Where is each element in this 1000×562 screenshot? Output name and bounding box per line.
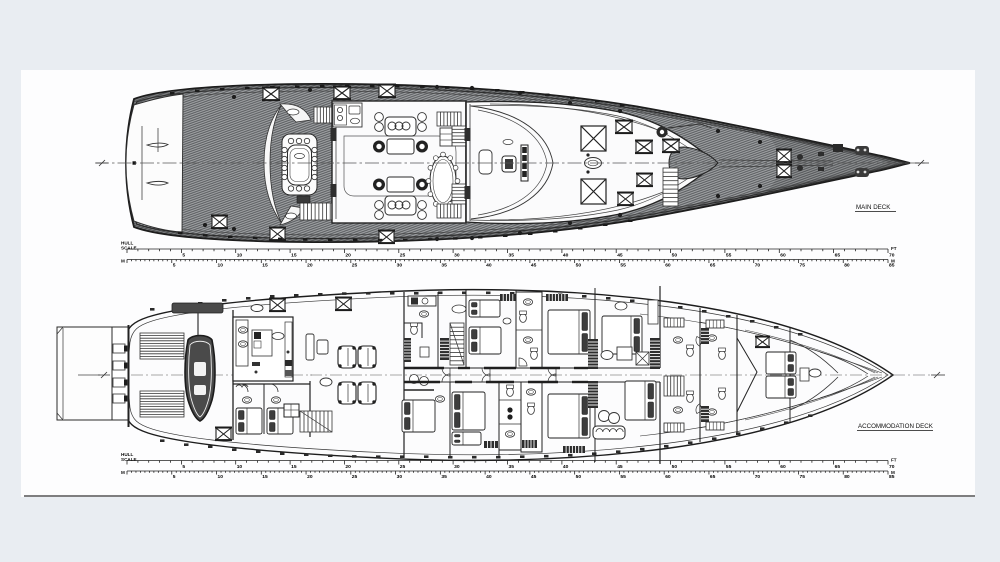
svg-text:45: 45	[617, 464, 623, 470]
svg-text:25: 25	[352, 474, 358, 480]
svg-text:80: 80	[844, 474, 850, 480]
svg-text:70: 70	[755, 263, 761, 269]
svg-text:15: 15	[262, 474, 268, 480]
svg-text:35: 35	[509, 464, 515, 470]
svg-text:M: M	[891, 470, 895, 475]
svg-text:ACCOMMODATION DECK: ACCOMMODATION DECK	[858, 423, 934, 430]
svg-text:M: M	[121, 259, 125, 264]
svg-text:20: 20	[307, 474, 313, 480]
svg-text:70: 70	[755, 474, 761, 480]
svg-text:75: 75	[800, 474, 806, 480]
svg-text:30: 30	[397, 263, 403, 269]
svg-text:40: 40	[563, 464, 569, 470]
svg-text:5: 5	[173, 263, 176, 269]
svg-text:25: 25	[400, 464, 406, 470]
svg-text:55: 55	[620, 474, 626, 480]
svg-text:35: 35	[509, 253, 515, 259]
svg-text:40: 40	[486, 263, 492, 269]
svg-text:40: 40	[486, 474, 492, 480]
svg-text:60: 60	[780, 253, 786, 259]
svg-text:30: 30	[397, 474, 403, 480]
svg-text:65: 65	[835, 253, 841, 259]
svg-text:20: 20	[307, 263, 313, 269]
svg-text:15: 15	[291, 464, 297, 470]
svg-text:65: 65	[710, 474, 716, 480]
svg-text:25: 25	[352, 263, 358, 269]
svg-text:25: 25	[400, 253, 406, 259]
svg-text:50: 50	[672, 464, 678, 470]
svg-text:M: M	[891, 259, 895, 264]
svg-text:55: 55	[726, 253, 732, 259]
svg-text:45: 45	[617, 253, 623, 259]
svg-text:45: 45	[531, 263, 537, 269]
svg-text:SCALE: SCALE	[121, 246, 137, 251]
svg-text:50: 50	[576, 474, 582, 480]
svg-text:FT: FT	[891, 246, 897, 251]
svg-text:75: 75	[800, 263, 806, 269]
svg-text:65: 65	[835, 464, 841, 470]
svg-text:10: 10	[218, 263, 224, 269]
svg-text:35: 35	[441, 263, 447, 269]
svg-text:35: 35	[441, 474, 447, 480]
svg-text:15: 15	[291, 253, 297, 259]
svg-text:20: 20	[345, 253, 351, 259]
svg-text:20: 20	[345, 464, 351, 470]
svg-text:50: 50	[576, 263, 582, 269]
svg-text:80: 80	[844, 263, 850, 269]
svg-text:10: 10	[237, 464, 243, 470]
svg-text:55: 55	[726, 464, 732, 470]
svg-text:50: 50	[672, 253, 678, 259]
svg-text:FT: FT	[891, 458, 897, 463]
svg-text:45: 45	[531, 474, 537, 480]
svg-text:5: 5	[182, 253, 185, 259]
svg-text:15: 15	[262, 263, 268, 269]
svg-text:40: 40	[563, 253, 569, 259]
svg-text:30: 30	[454, 464, 460, 470]
svg-text:5: 5	[182, 464, 185, 470]
svg-text:30: 30	[454, 253, 460, 259]
svg-text:55: 55	[620, 263, 626, 269]
svg-text:MAIN DECK: MAIN DECK	[856, 204, 891, 211]
svg-text:5: 5	[173, 474, 176, 480]
svg-text:60: 60	[665, 474, 671, 480]
svg-text:60: 60	[665, 263, 671, 269]
svg-text:60: 60	[780, 464, 786, 470]
svg-text:SCALE: SCALE	[121, 457, 137, 462]
svg-text:M: M	[121, 470, 125, 475]
svg-text:10: 10	[237, 253, 243, 259]
svg-text:65: 65	[710, 263, 716, 269]
svg-text:10: 10	[218, 474, 224, 480]
